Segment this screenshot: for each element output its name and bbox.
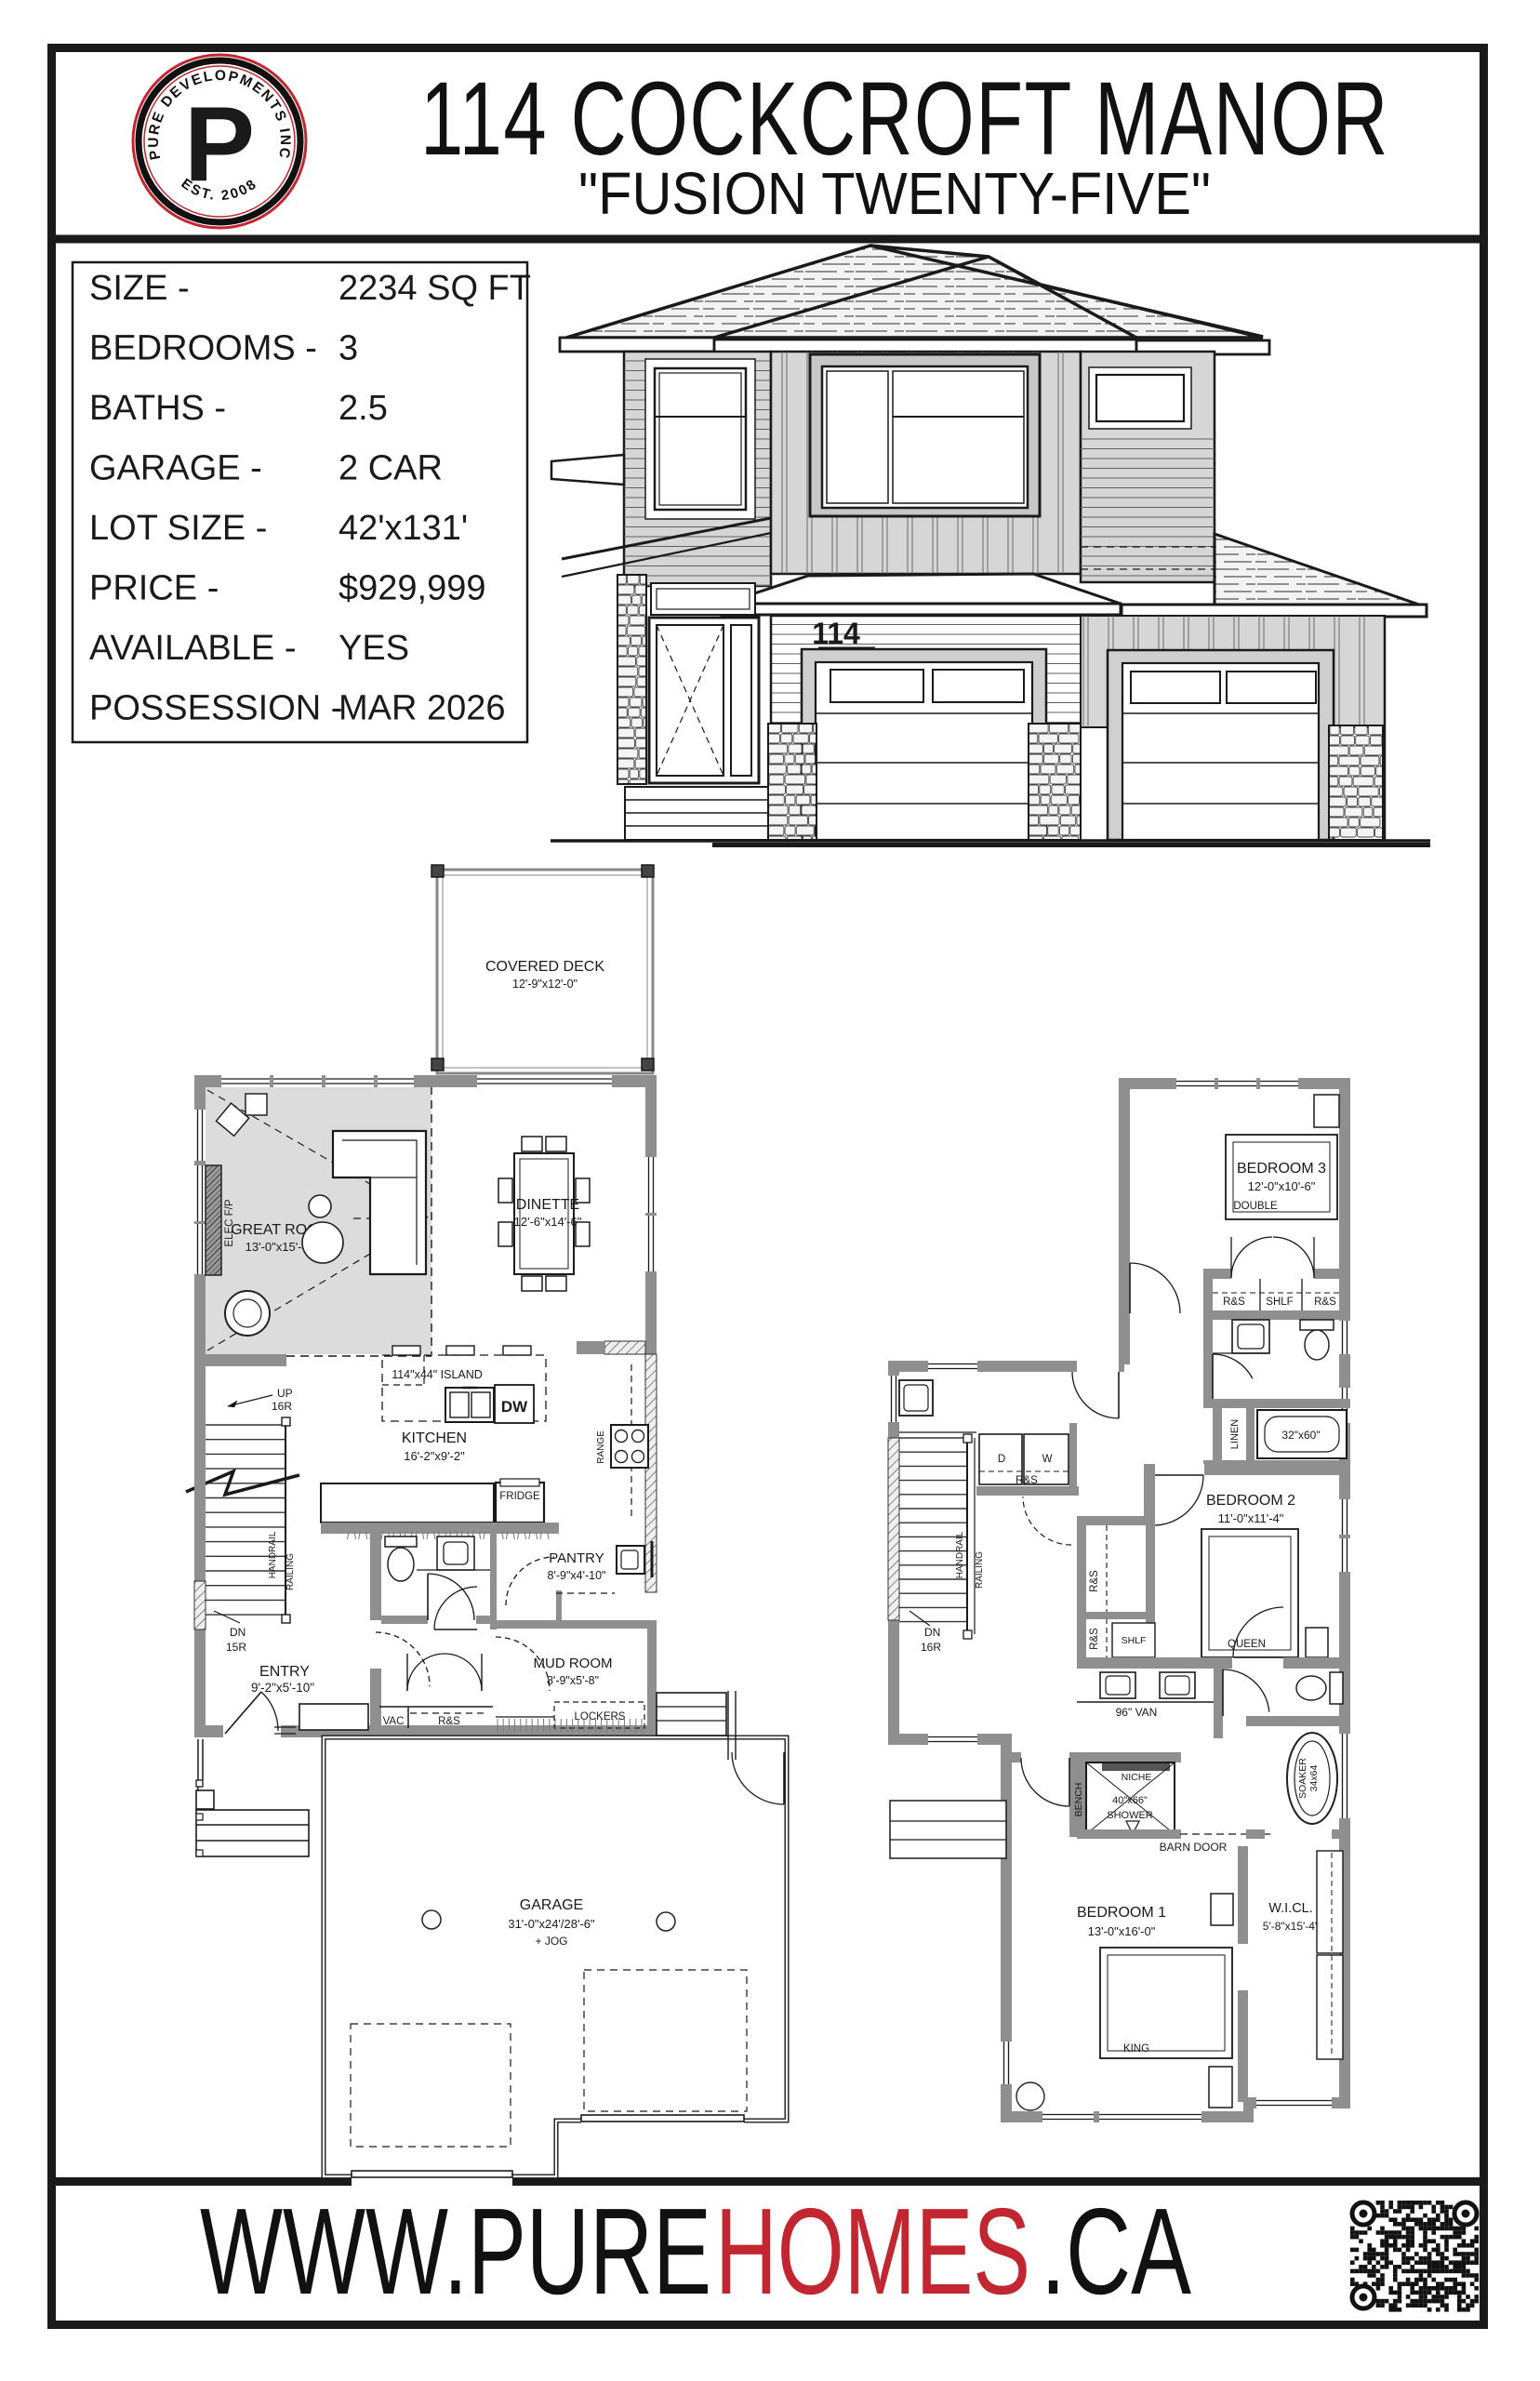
- svg-text:SOAKER: SOAKER: [1297, 1758, 1308, 1799]
- svg-text:R&S: R&S: [1016, 1475, 1038, 1486]
- svg-text:BARN DOOR: BARN DOOR: [1160, 1841, 1228, 1854]
- svg-text:12'-0"x10'-6": 12'-0"x10'-6": [1248, 1179, 1316, 1193]
- svg-text:PANTRY: PANTRY: [549, 1550, 604, 1566]
- svg-text:KITCHEN: KITCHEN: [402, 1430, 467, 1446]
- svg-text:DN: DN: [924, 1626, 940, 1639]
- svg-text:16'-2"x9'-2": 16'-2"x9'-2": [404, 1449, 465, 1463]
- svg-text:DW: DW: [501, 1398, 528, 1416]
- svg-text:42'x131': 42'x131': [339, 509, 468, 548]
- svg-text:BATHS -: BATHS -: [89, 389, 226, 428]
- svg-text:MUD ROOM: MUD ROOM: [534, 1656, 613, 1671]
- svg-text:AVAILABLE -: AVAILABLE -: [89, 629, 296, 668]
- svg-text:UP: UP: [277, 1387, 293, 1400]
- svg-text:SHLF: SHLF: [1122, 1635, 1147, 1646]
- svg-text:114"x44" ISLAND: 114"x44" ISLAND: [392, 1368, 483, 1381]
- svg-text:RANGE: RANGE: [596, 1430, 606, 1464]
- svg-text:31'-0"x24'/28'-6": 31'-0"x24'/28'-6": [508, 1917, 595, 1931]
- svg-text:COVERED DECK: COVERED DECK: [485, 959, 604, 975]
- svg-text:11'-0"x11'-4": 11'-0"x11'-4": [1218, 1511, 1284, 1525]
- svg-text:LOCKERS: LOCKERS: [575, 1711, 626, 1723]
- svg-text:WWW.PURE: WWW.PURE: [200, 2183, 711, 2320]
- svg-text:QUEEN: QUEEN: [1228, 1639, 1266, 1650]
- svg-text:BEDROOM 1: BEDROOM 1: [1077, 1905, 1166, 1921]
- svg-text:R&S: R&S: [1089, 1570, 1100, 1592]
- svg-text:D: D: [998, 1454, 1005, 1465]
- svg-text:"FUSION TWENTY-FIVE": "FUSION TWENTY-FIVE": [578, 160, 1211, 227]
- svg-text:NICHE: NICHE: [1122, 1772, 1152, 1783]
- svg-text:40"x66": 40"x66": [1112, 1795, 1148, 1806]
- svg-text:HOMES: HOMES: [715, 2183, 1030, 2320]
- svg-text:12'-9"x12'-0": 12'-9"x12'-0": [512, 978, 577, 991]
- svg-text:2.5: 2.5: [339, 389, 388, 428]
- svg-text:3: 3: [339, 329, 358, 368]
- svg-text:KING: KING: [1123, 2043, 1149, 2055]
- svg-text:DINETTE: DINETTE: [516, 1197, 579, 1213]
- svg-text:GARAGE: GARAGE: [520, 1897, 583, 1913]
- svg-text:16R: 16R: [272, 1400, 292, 1413]
- svg-text:R&S: R&S: [438, 1716, 460, 1727]
- svg-text:RAILING: RAILING: [975, 1551, 985, 1589]
- svg-text:BEDROOM 2: BEDROOM 2: [1206, 1493, 1295, 1509]
- svg-text:5'-8"x15'-4": 5'-8"x15'-4": [1263, 1920, 1319, 1933]
- svg-text:SHLF: SHLF: [1266, 1297, 1293, 1308]
- svg-text:.CA: .CA: [1041, 2183, 1191, 2320]
- svg-text:R&S: R&S: [1223, 1297, 1245, 1308]
- svg-text:YES: YES: [339, 629, 409, 668]
- svg-text:POSSESSION -: POSSESSION -: [89, 689, 342, 728]
- svg-text:R&S: R&S: [1314, 1297, 1336, 1308]
- svg-text:HANDRAIL: HANDRAIL: [268, 1531, 278, 1578]
- svg-text:VAC: VAC: [383, 1716, 405, 1727]
- svg-text:34x64: 34x64: [1308, 1765, 1320, 1792]
- svg-text:MAR 2026: MAR 2026: [339, 689, 506, 728]
- svg-text:RAILING: RAILING: [285, 1553, 296, 1590]
- svg-text:2 CAR: 2 CAR: [339, 449, 443, 488]
- svg-text:BENCH: BENCH: [1073, 1783, 1084, 1817]
- svg-text:R&S: R&S: [1089, 1628, 1100, 1650]
- svg-text:2234 SQ FT: 2234 SQ FT: [339, 269, 531, 308]
- svg-text:12'-6"x14'-6": 12'-6"x14'-6": [514, 1215, 582, 1229]
- svg-text:SHOWER: SHOWER: [1107, 1810, 1153, 1821]
- svg-text:96" VAN: 96" VAN: [1116, 1706, 1158, 1719]
- svg-text:BEDROOMS -: BEDROOMS -: [89, 329, 317, 368]
- svg-text:ENTRY: ENTRY: [259, 1664, 310, 1680]
- svg-text:HANDRAIL: HANDRAIL: [955, 1531, 965, 1578]
- svg-text:9'-2"x5'-10": 9'-2"x5'-10": [251, 1681, 314, 1695]
- svg-text:8'-9"x5'-8": 8'-9"x5'-8": [547, 1674, 599, 1687]
- svg-text:8'-9"x4'-10": 8'-9"x4'-10": [548, 1569, 606, 1582]
- svg-text:13'-0"x16'-0": 13'-0"x16'-0": [1088, 1924, 1156, 1938]
- svg-text:BEDROOM 3: BEDROOM 3: [1237, 1161, 1326, 1177]
- svg-text:W: W: [1042, 1454, 1053, 1465]
- svg-text:GARAGE -: GARAGE -: [89, 449, 262, 488]
- svg-text:LINEN: LINEN: [1229, 1419, 1241, 1449]
- svg-text:W.I.CL.: W.I.CL.: [1268, 1901, 1313, 1916]
- svg-text:PRICE -: PRICE -: [89, 569, 219, 608]
- svg-text:FRIDGE: FRIDGE: [499, 1491, 540, 1502]
- svg-text:SIZE -: SIZE -: [89, 269, 190, 308]
- svg-text:LOT SIZE -: LOT SIZE -: [89, 509, 267, 548]
- svg-text:DOUBLE: DOUBLE: [1233, 1201, 1278, 1212]
- svg-text:16R: 16R: [921, 1641, 941, 1654]
- svg-text:32"x60": 32"x60": [1281, 1429, 1320, 1442]
- svg-text:$929,999: $929,999: [339, 569, 486, 608]
- svg-text:114: 114: [812, 617, 860, 650]
- svg-text:+ JOG: + JOG: [535, 1935, 567, 1948]
- svg-text:15R: 15R: [226, 1641, 246, 1654]
- svg-text:DN: DN: [230, 1626, 246, 1639]
